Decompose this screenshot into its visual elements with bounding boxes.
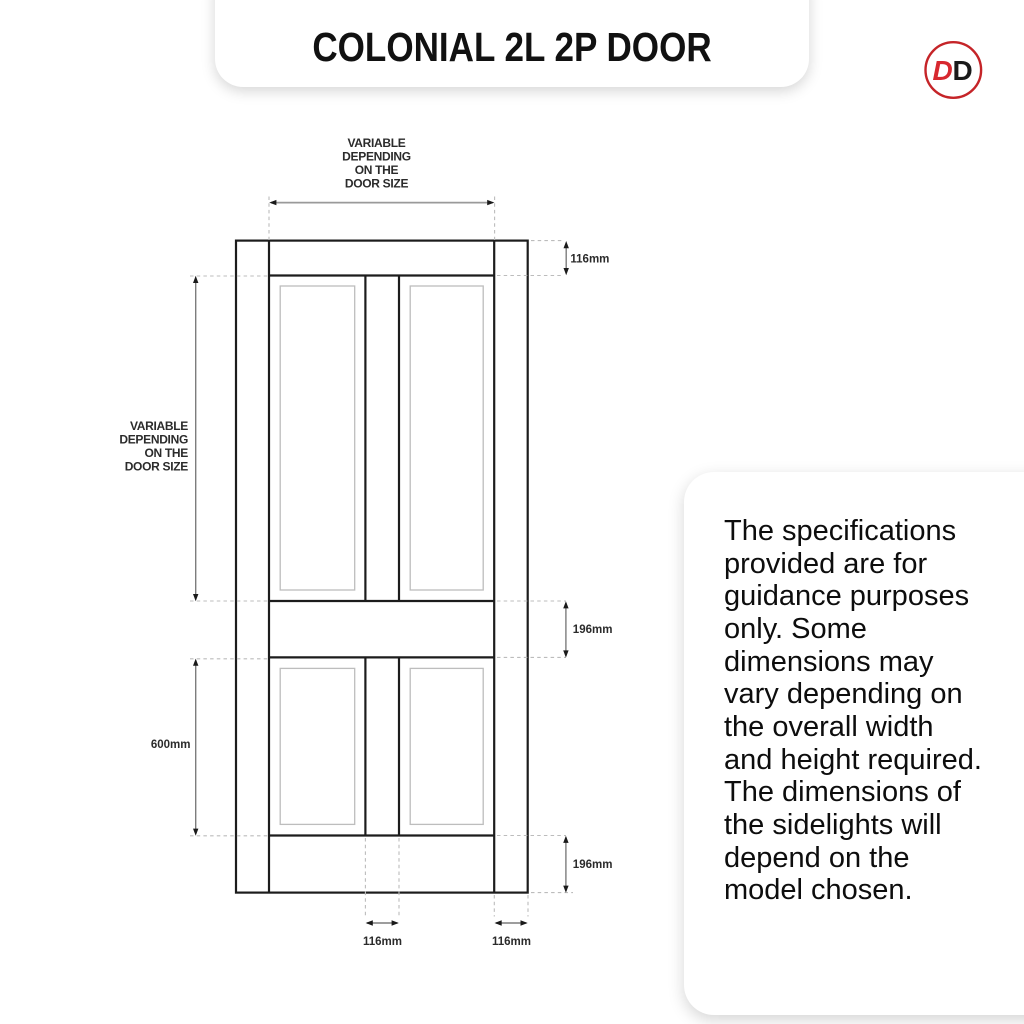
- svg-text:D: D: [933, 55, 953, 86]
- svg-text:116mm: 116mm: [363, 936, 402, 948]
- svg-text:ON THE: ON THE: [144, 446, 188, 460]
- svg-text:116mm: 116mm: [492, 936, 531, 948]
- svg-text:196mm: 196mm: [573, 624, 613, 636]
- svg-text:ON THE: ON THE: [355, 163, 399, 177]
- svg-text:600mm: 600mm: [151, 739, 191, 751]
- svg-text:VARIABLE: VARIABLE: [130, 419, 188, 433]
- svg-text:VARIABLE: VARIABLE: [347, 136, 405, 150]
- svg-text:DEPENDING: DEPENDING: [342, 149, 411, 163]
- svg-text:DOOR SIZE: DOOR SIZE: [125, 460, 189, 474]
- svg-text:DOOR SIZE: DOOR SIZE: [345, 176, 409, 190]
- svg-text:DEPENDING: DEPENDING: [119, 433, 188, 447]
- svg-text:116mm: 116mm: [570, 253, 609, 265]
- svg-text:D: D: [953, 55, 973, 86]
- svg-text:196mm: 196mm: [573, 859, 613, 871]
